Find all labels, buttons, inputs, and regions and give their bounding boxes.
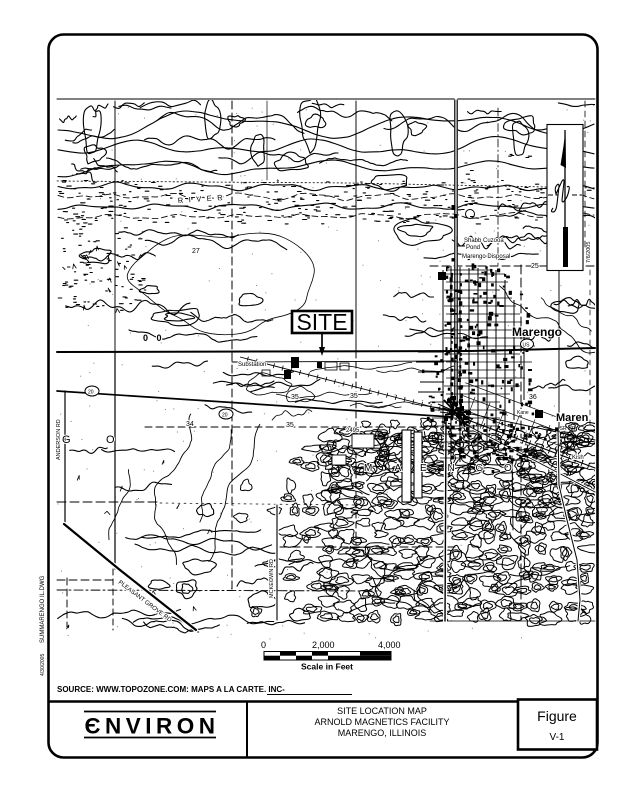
svg-text:0 0: 0 0 bbox=[143, 333, 165, 343]
svg-text:27: 27 bbox=[192, 248, 200, 255]
svg-text:20: 20 bbox=[88, 390, 94, 396]
svg-text:MARENGO, ILLINOIS: MARENGO, ILLINOIS bbox=[338, 728, 427, 738]
svg-text:4/30/2005: 4/30/2005 bbox=[40, 654, 46, 676]
svg-text:M A: M A bbox=[364, 463, 411, 474]
svg-text:ARNOLD MAGNETICS FACILITY: ARNOLD MAGNETICS FACILITY bbox=[314, 717, 449, 727]
svg-text:4,000: 4,000 bbox=[378, 640, 401, 650]
svg-text:(SR 23): (SR 23) bbox=[558, 426, 576, 432]
svg-text:Marengo: Marengo bbox=[512, 325, 562, 339]
svg-text:SUMMARENGO IL.DWG: SUMMARENGO IL.DWG bbox=[40, 575, 46, 643]
svg-text:2495: 2495 bbox=[346, 428, 360, 434]
svg-text:20: 20 bbox=[222, 413, 228, 419]
svg-text:O: O bbox=[106, 434, 115, 446]
svg-text:34: 34 bbox=[186, 421, 194, 428]
svg-text:SITE LOCATION MAP: SITE LOCATION MAP bbox=[337, 706, 427, 716]
svg-text:MCKEOWN RD: MCKEOWN RD bbox=[269, 559, 275, 598]
svg-text:G: G bbox=[62, 434, 71, 446]
svg-text:Kish: Kish bbox=[572, 455, 584, 461]
svg-text:V-1: V-1 bbox=[549, 732, 564, 743]
svg-text:Maren: Maren bbox=[556, 412, 589, 424]
svg-text:35: 35 bbox=[286, 422, 294, 429]
svg-text:E N G O: E N G O bbox=[420, 463, 521, 474]
svg-text:7/6/2005: 7/6/2005 bbox=[586, 242, 592, 263]
svg-text:Marengo Disposal: Marengo Disposal bbox=[462, 254, 510, 260]
svg-text:SITE: SITE bbox=[296, 309, 347, 335]
svg-text:Kane: Kane bbox=[517, 410, 529, 416]
svg-text:35: 35 bbox=[350, 393, 358, 400]
svg-text:ЄNVIRON: ЄNVIRON bbox=[84, 714, 219, 739]
svg-text:Shabb Cuzooa: Shabb Cuzooa bbox=[464, 238, 504, 244]
svg-text:36: 36 bbox=[529, 394, 537, 401]
svg-text:ANDERSON RD: ANDERSON RD bbox=[56, 419, 62, 460]
svg-text:Substation: Substation bbox=[238, 362, 266, 368]
svg-text:Scale in Feet: Scale in Feet bbox=[301, 662, 353, 672]
svg-text:Figure: Figure bbox=[537, 708, 577, 724]
svg-text:25: 25 bbox=[531, 263, 539, 270]
svg-text:US: US bbox=[523, 343, 531, 349]
svg-text:Pond: Pond bbox=[466, 245, 480, 251]
svg-text:SOURCE: WWW.TOPOZONE.COM: MAPS: SOURCE: WWW.TOPOZONE.COM: MAPS A LA CART… bbox=[57, 685, 285, 694]
svg-text:35: 35 bbox=[291, 394, 299, 401]
svg-text:2,000: 2,000 bbox=[312, 640, 335, 650]
svg-text:0: 0 bbox=[261, 640, 266, 650]
